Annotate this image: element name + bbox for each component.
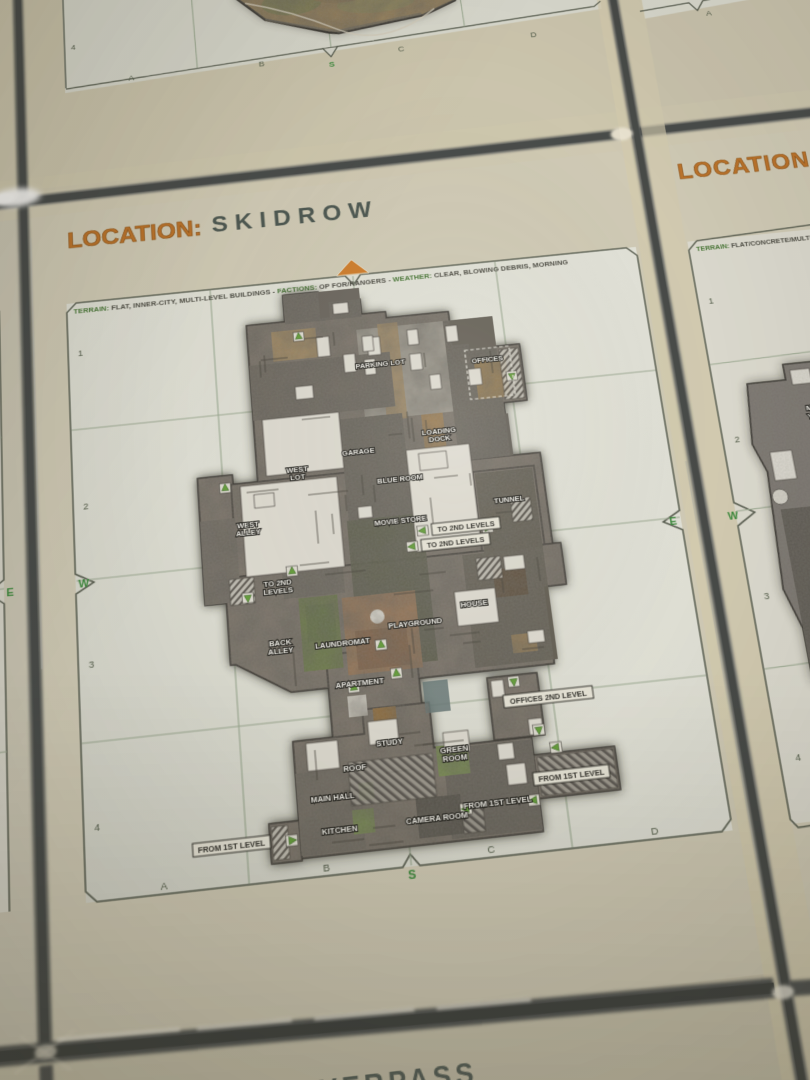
svg-text:W: W: [78, 577, 89, 590]
svg-text:S: S: [408, 868, 417, 882]
svg-text:B: B: [323, 862, 331, 875]
svg-text:1: 1: [78, 348, 83, 358]
svg-text:E: E: [6, 586, 14, 599]
svg-text:2: 2: [83, 501, 89, 512]
svg-text:S: S: [329, 60, 336, 69]
svg-text:LOT: LOT: [290, 474, 306, 484]
svg-text:B: B: [258, 59, 264, 68]
